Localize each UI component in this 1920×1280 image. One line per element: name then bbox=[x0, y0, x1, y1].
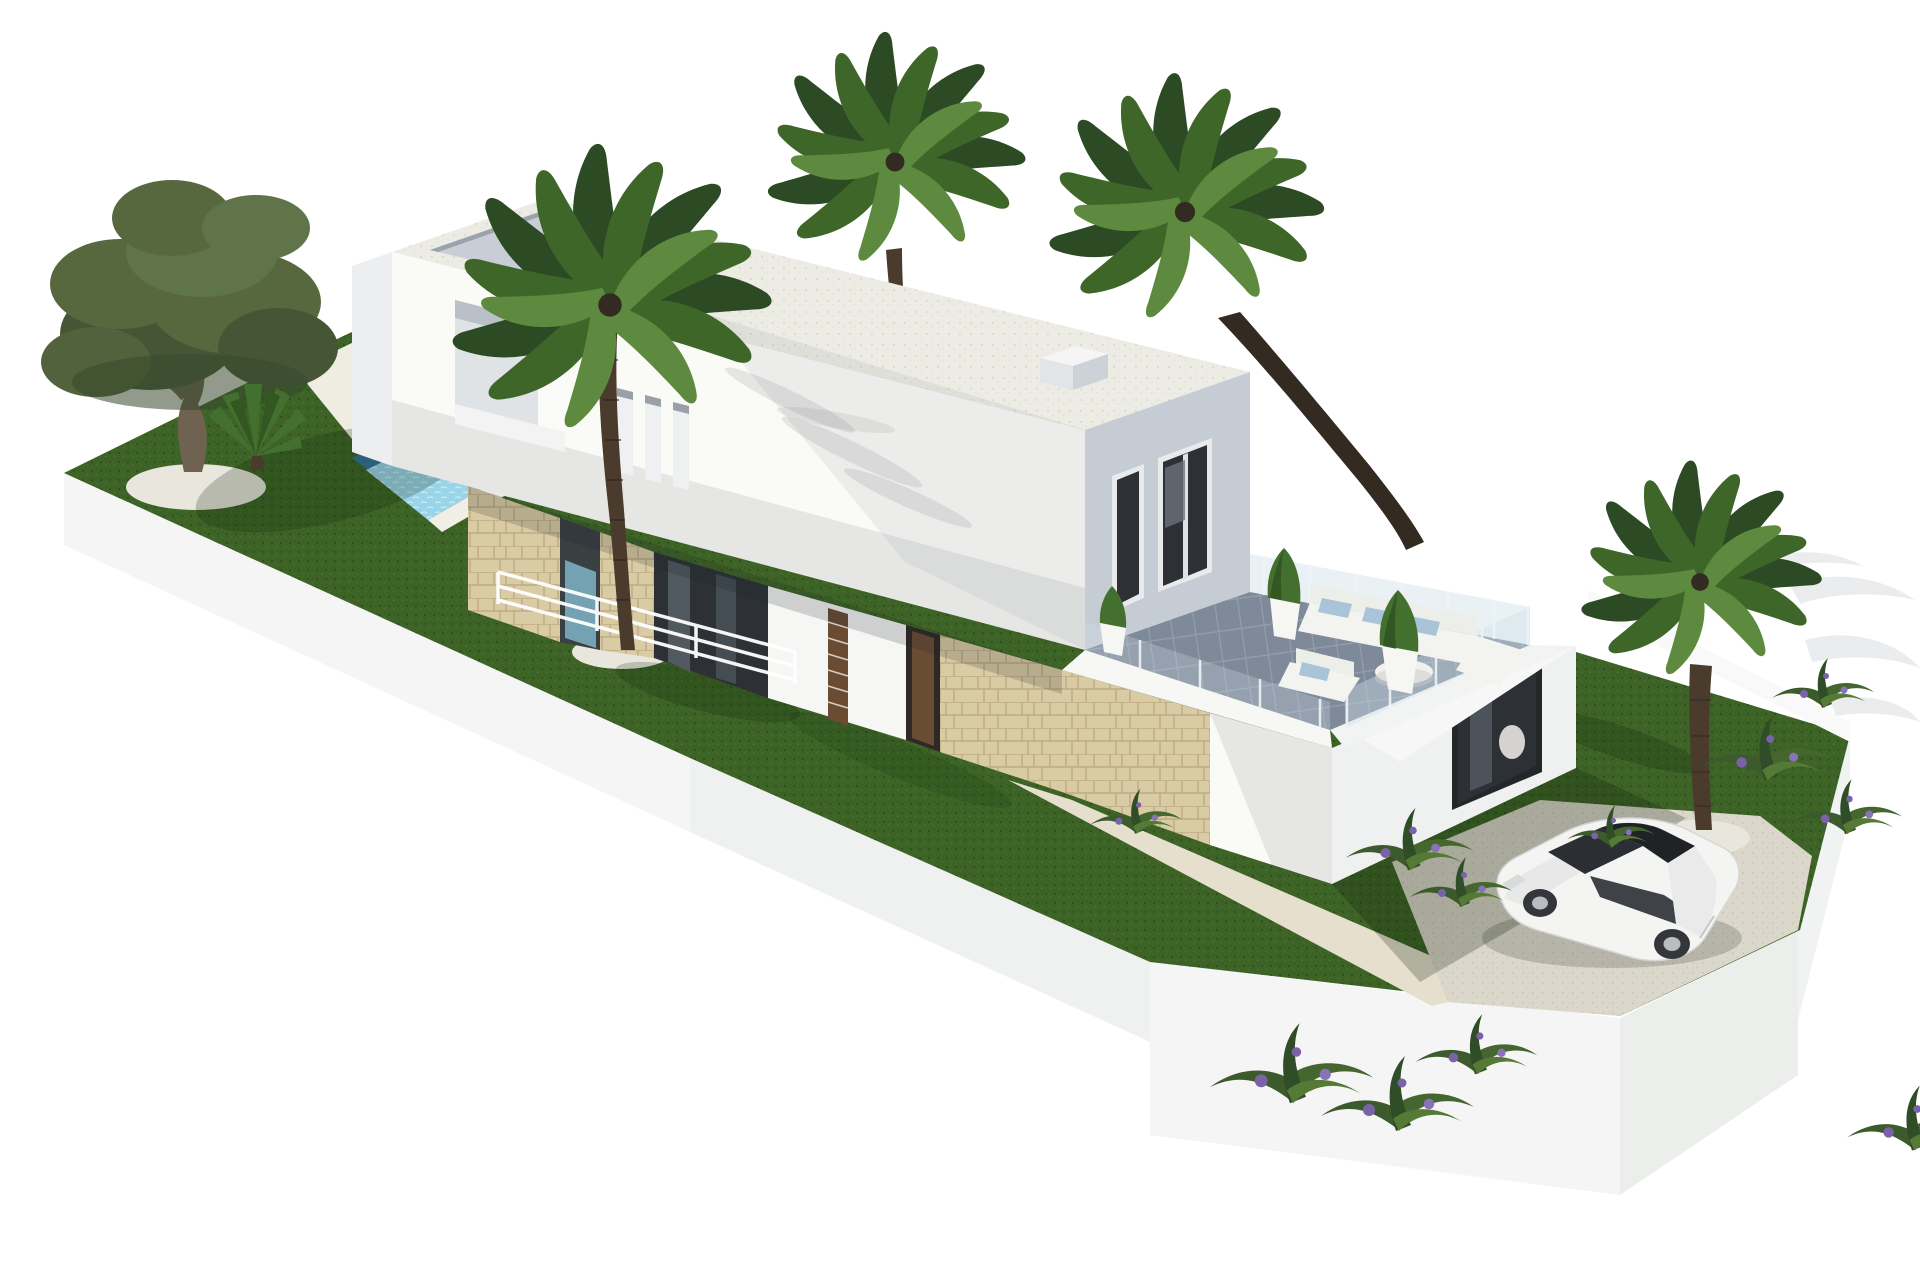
render-canvas: 3D architectural render of a modern two-… bbox=[0, 0, 1920, 1280]
slit-window bbox=[645, 395, 661, 483]
terrace-door bbox=[1112, 464, 1144, 612]
terrace-door-large bbox=[1158, 438, 1212, 592]
car-wheel-front bbox=[1523, 889, 1557, 917]
villa-render-image: 3D architectural render of a modern two-… bbox=[0, 0, 1920, 1280]
slit-window bbox=[673, 402, 689, 490]
upper-left-end-face bbox=[352, 252, 392, 466]
car-wheel-rear bbox=[1654, 929, 1690, 959]
